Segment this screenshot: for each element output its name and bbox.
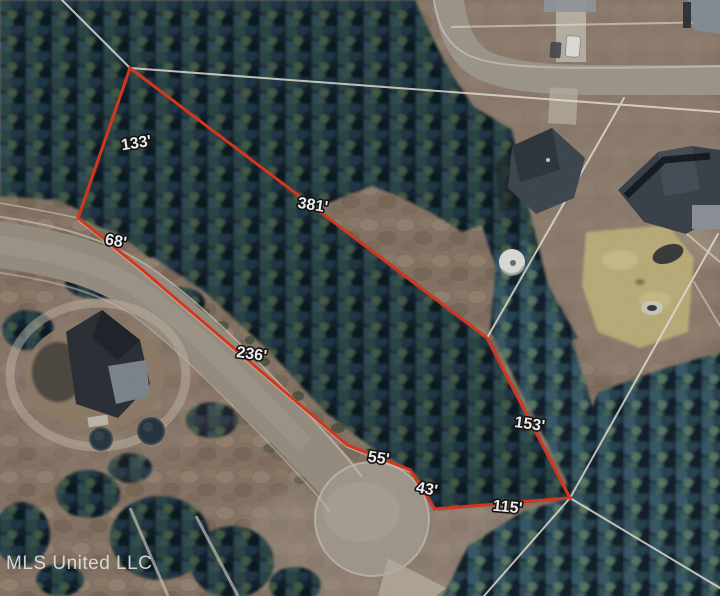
aerial-photo-canvas: 381'153'115'43'55'236'68'133' [0,0,720,596]
photo-grain [0,0,720,596]
aerial-photo: 381'153'115'43'55'236'68'133' MLS United… [0,0,720,596]
watermark: MLS United LLC [6,553,152,575]
